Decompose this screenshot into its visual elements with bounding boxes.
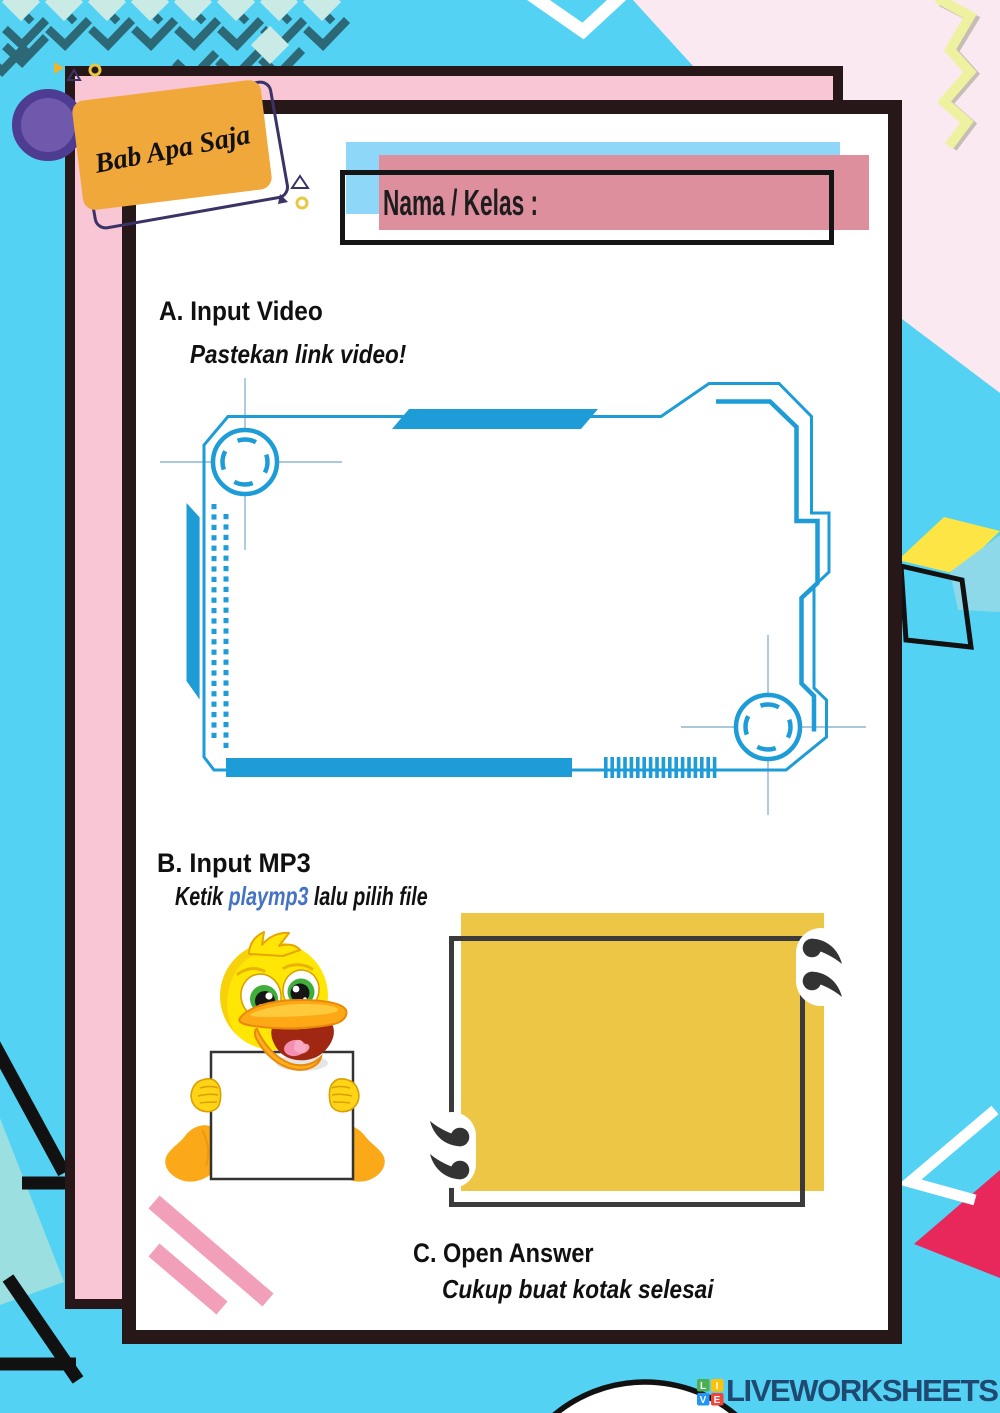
svg-text:I: I — [716, 1381, 719, 1392]
svg-text:E: E — [714, 1395, 721, 1406]
svg-text:V: V — [700, 1395, 707, 1406]
svg-text:L: L — [700, 1381, 706, 1392]
